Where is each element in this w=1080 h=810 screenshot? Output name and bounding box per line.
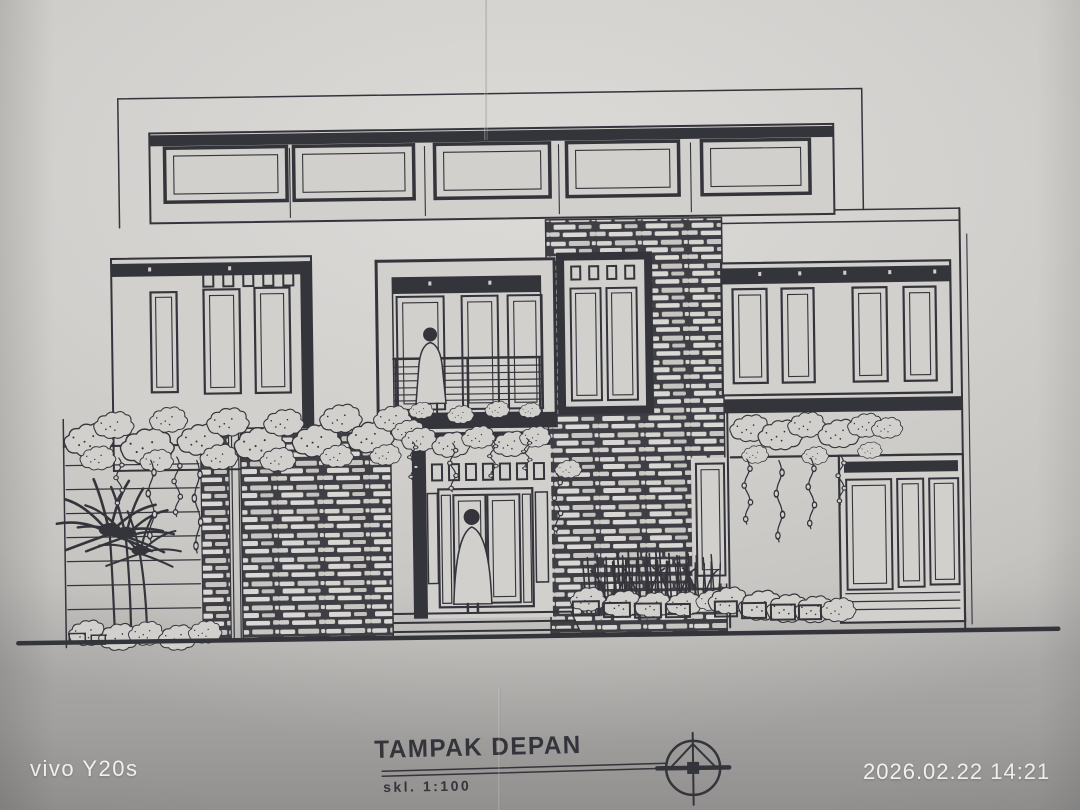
photo-of-architectural-drawing: TAMPAK DEPAN skl. 1:100 vivo Y20s 2026.0… xyxy=(0,0,1080,810)
clerestory-band xyxy=(149,124,834,224)
tower-window xyxy=(556,251,654,414)
balcony-block xyxy=(376,259,556,428)
right-window xyxy=(839,454,965,623)
camera-device-watermark: vivo Y20s xyxy=(30,756,138,782)
entry-porch xyxy=(371,430,579,632)
drawing-title: TAMPAK DEPAN xyxy=(374,731,582,765)
right-upper-block xyxy=(721,260,962,413)
drawing-scale: skl. 1:100 xyxy=(383,777,471,795)
title-underline xyxy=(382,763,667,776)
photo-timestamp: 2026.02.22 14:21 xyxy=(863,759,1050,785)
north-arrow-icon xyxy=(657,732,730,805)
elevation-drawing xyxy=(0,0,1080,810)
